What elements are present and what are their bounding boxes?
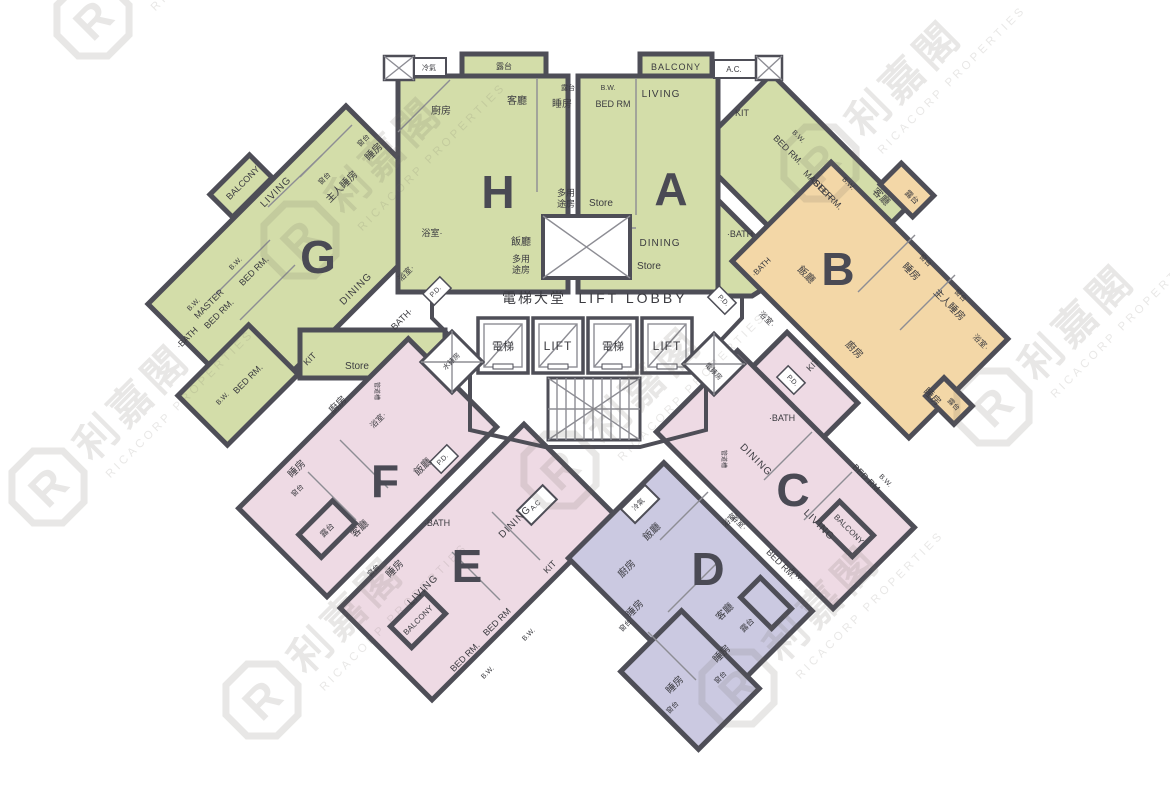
- unit-letter-E: E: [452, 540, 483, 592]
- room-label-H-11: 多用: [512, 253, 530, 264]
- room-label-H-5: 睡房: [552, 97, 572, 110]
- lift-shaft-void: [543, 216, 630, 278]
- room-label-H-10: 飯廳: [511, 235, 531, 248]
- room-label-A-4: LIVING: [642, 89, 681, 100]
- floor-plan-page: R利嘉閣RICACORP PROPERTIESR利嘉閣RICACORP PROP…: [0, 0, 1170, 785]
- unit-letter-C: C: [776, 464, 809, 516]
- room-label-A-3: BED RM: [595, 99, 630, 109]
- room-label-C-2: ·BATH: [769, 413, 795, 423]
- room-label-A-11: ·BATH: [727, 229, 753, 239]
- ac-box: [384, 56, 446, 80]
- unit-letter-A: A: [654, 163, 687, 215]
- room-label-H-1: 露台: [496, 61, 512, 71]
- unit-letter-D: D: [691, 543, 724, 595]
- room-label-H-12: 途房: [512, 264, 530, 275]
- ac-box: [714, 56, 782, 80]
- room-label-F-2: 管道槽: [373, 382, 381, 400]
- room-label-A-2: B.W.: [601, 85, 616, 92]
- room-label-A-13: Store: [637, 261, 661, 272]
- room-label-A-5: KIT: [735, 108, 750, 118]
- room-label-H-8: Store: [589, 198, 613, 209]
- floor-plan-drawing: R利嘉閣RICACORP PROPERTIESR利嘉閣RICACORP PROP…: [0, 0, 1170, 785]
- room-label-H-7: 途房: [557, 198, 575, 209]
- room-label-A-12: DINING: [640, 238, 681, 249]
- room-label-H-0: 冷氣: [422, 63, 436, 72]
- room-label-A-0: BALCONY: [651, 62, 701, 72]
- room-label-H-4: 露台: [561, 83, 575, 92]
- core-label-5: LIFT: [653, 339, 682, 353]
- core-label-1: LIFT LOBBY: [578, 290, 687, 306]
- room-label-A-1: A.C.: [726, 65, 742, 74]
- room-label-E-0: ·BATH: [424, 518, 450, 528]
- room-label-H-6: 多用: [557, 187, 575, 198]
- unit-letter-G: G: [300, 231, 336, 283]
- room-label-C-3: 管道槽: [720, 450, 728, 468]
- core-label-2: 電梯: [492, 340, 514, 353]
- room-label-H-3: 廚房: [431, 104, 451, 117]
- core-label-3: LIFT: [544, 339, 573, 353]
- unit-letter-F: F: [371, 455, 399, 507]
- unit-letter-B: B: [821, 243, 854, 295]
- core-label-4: 電梯: [602, 340, 624, 353]
- room-label-H-9: 浴室·: [422, 227, 443, 238]
- unit-letter-H: H: [481, 166, 514, 218]
- room-label-H-2: 客廳: [507, 94, 527, 107]
- room-label-G-17: Store: [345, 361, 369, 372]
- core-label-0: 電梯大堂: [502, 290, 566, 306]
